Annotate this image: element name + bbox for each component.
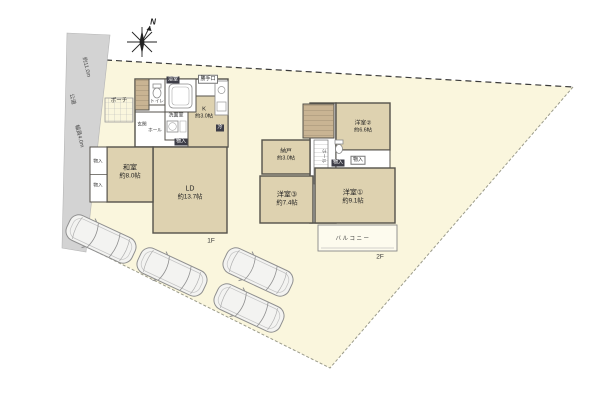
porch-label: ポーチ (111, 98, 128, 104)
room1-name: 洋室① (342, 189, 363, 197)
floor1-label: 1F (207, 237, 215, 244)
entrance-label: 玄関 (137, 121, 146, 126)
toilet-label: トイレ (150, 98, 164, 103)
floorplan-page: N 約11.0m 公道 幅員4.0m 浴室 勝手口 トイレ 洗面室 ポーチ 玄関… (0, 0, 600, 401)
hall-1f-label: ホール (148, 127, 162, 132)
room3-size: 約7.4帖 (276, 199, 297, 206)
ld-label: LD 約13.7帖 (178, 185, 203, 200)
fridge-label: 冷 (216, 125, 224, 132)
toilet-icon-2f (335, 140, 343, 154)
north-label: N (150, 19, 156, 28)
room3-label: 洋室③ 約7.4帖 (276, 191, 297, 206)
hall-2f-label: ホール (320, 149, 325, 163)
kitchen-size: 約3.0帖 (195, 113, 213, 119)
storage-badge-2f-a: 物入 (331, 160, 344, 167)
washitsu-name: 和室 (119, 164, 140, 172)
nando-label: 納戸 約3.0帖 (277, 149, 295, 162)
washroom-label: 洗面室 (168, 113, 183, 119)
room3-name: 洋室③ (276, 191, 297, 199)
room2-name: 洋室② (354, 121, 372, 128)
washitsu-label: 和室 約8.0帖 (119, 164, 140, 179)
storage-closet-a: 物入 (93, 158, 102, 163)
storage-closet-b: 物入 (93, 182, 102, 187)
room2-label: 洋室② 約6.6帖 (354, 121, 372, 134)
back-door-label: 勝手口 (198, 75, 218, 84)
storage-badge-1f: 物入 (174, 139, 187, 146)
room1-size: 約9.1帖 (342, 197, 363, 204)
bathtub-icon (169, 84, 192, 108)
ld-name: LD (178, 185, 203, 193)
toilet-icon (153, 84, 161, 98)
compass-icon (127, 26, 157, 57)
ld-size: 約13.7帖 (178, 193, 203, 200)
room1-label: 洋室① 約9.1帖 (342, 189, 363, 204)
nando-size: 約3.0帖 (277, 155, 295, 161)
washing-machine-icon (167, 121, 186, 132)
site-plan-canvas (0, 0, 600, 401)
washitsu-size: 約8.0帖 (119, 172, 140, 179)
bath-label: 浴室 (166, 77, 179, 84)
kitchen-name: K (195, 107, 213, 114)
room2-size: 約6.6帖 (354, 127, 372, 133)
balcony-label: バルコニー (336, 236, 371, 242)
kitchen-label: K 約3.0帖 (195, 107, 213, 120)
storage-badge-2f-b: 物入 (350, 156, 365, 165)
nando-name: 納戸 (277, 149, 295, 156)
floor2-label: 2F (376, 253, 384, 260)
